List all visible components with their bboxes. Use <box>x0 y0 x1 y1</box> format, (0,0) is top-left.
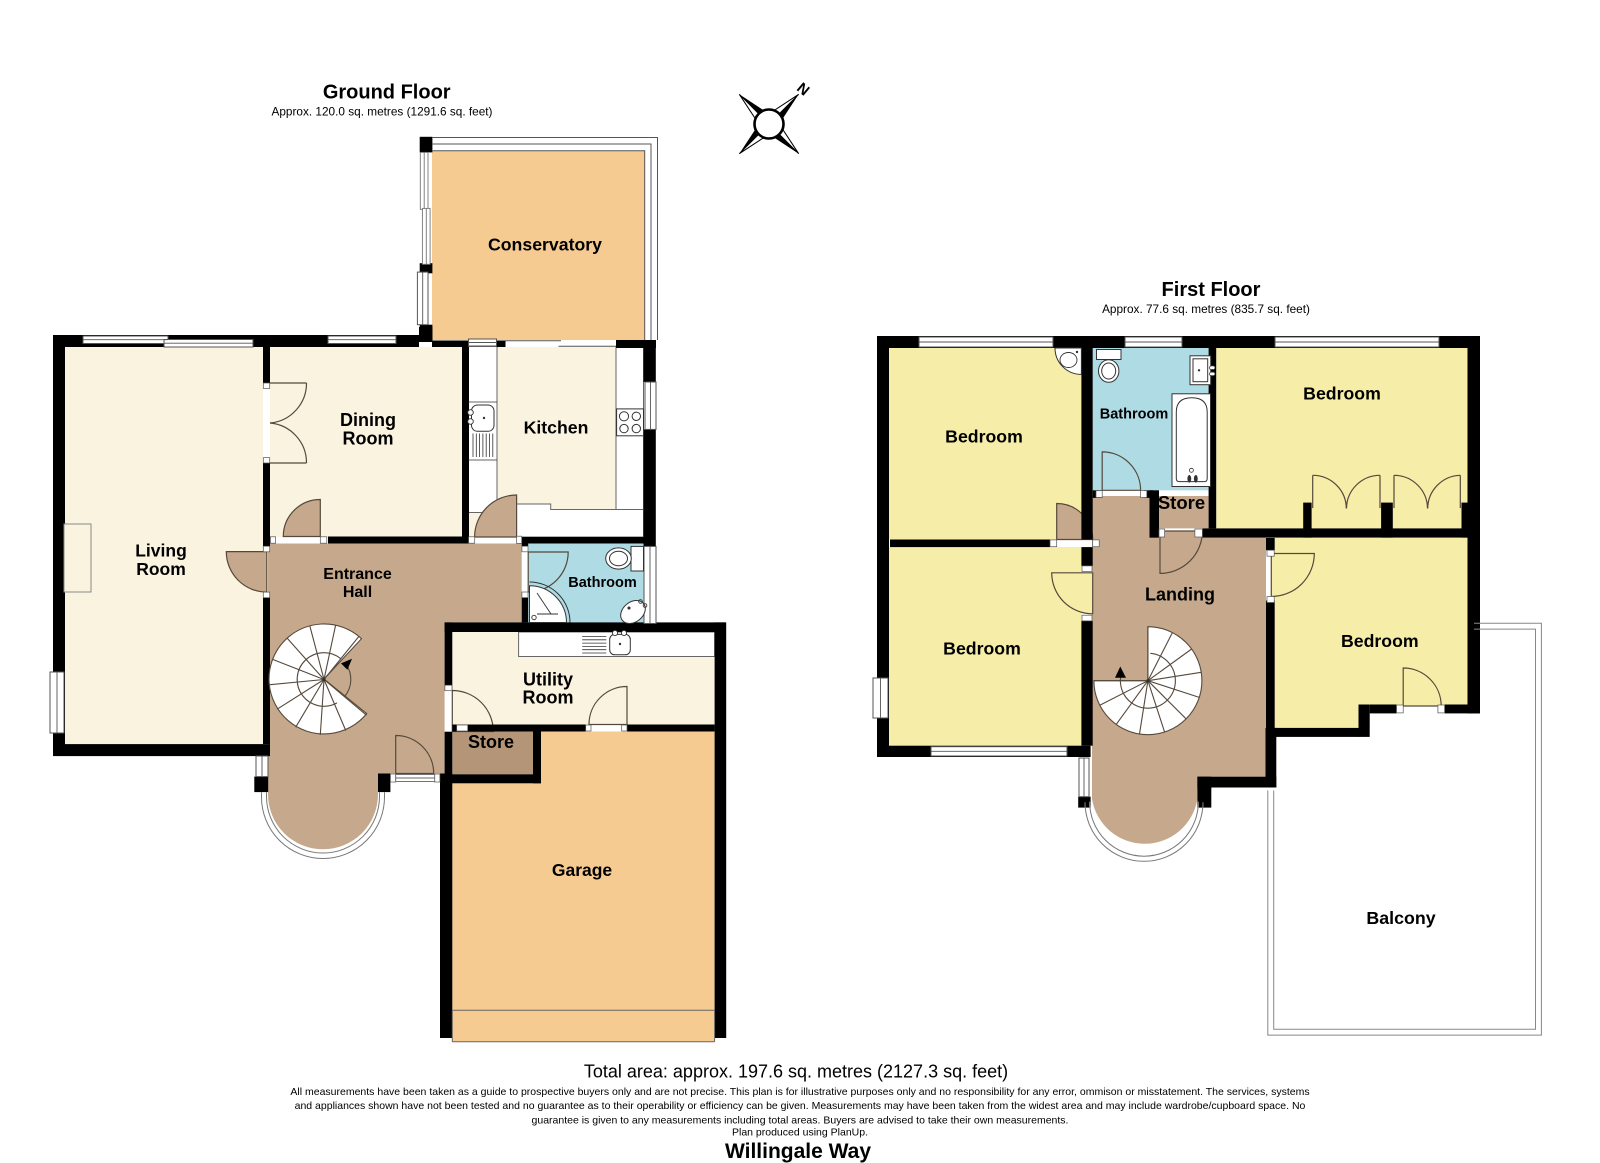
svg-text:Total area: approx. 197.6 sq.: Total area: approx. 197.6 sq. metres (21… <box>584 1062 1008 1082</box>
svg-text:Landing: Landing <box>1145 585 1215 605</box>
svg-text:Bedroom: Bedroom <box>943 638 1021 658</box>
svg-text:Ground Floor: Ground Floor <box>323 82 451 104</box>
svg-text:Approx. 120.0 sq. metres (1291: Approx. 120.0 sq. metres (1291.6 sq. fee… <box>272 105 493 119</box>
svg-text:Willingale Way: Willingale Way <box>725 1140 871 1163</box>
svg-text:Store: Store <box>1158 492 1205 513</box>
svg-text:Dining: Dining <box>340 410 396 430</box>
svg-text:Entrance: Entrance <box>323 566 392 583</box>
svg-text:Room: Room <box>343 429 394 449</box>
svg-text:Utility: Utility <box>523 670 573 690</box>
svg-text:Bedroom: Bedroom <box>945 426 1023 446</box>
svg-text:All measurements have been tak: All measurements have been taken as a gu… <box>290 1086 1309 1098</box>
svg-text:guarantee is given to any meas: guarantee is given to any measurements i… <box>532 1115 1069 1127</box>
svg-text:Hall: Hall <box>343 584 372 601</box>
svg-text:Bedroom: Bedroom <box>1341 631 1419 651</box>
svg-text:Living: Living <box>135 540 187 560</box>
svg-text:Garage: Garage <box>552 860 613 880</box>
svg-text:Conservatory: Conservatory <box>488 234 602 254</box>
svg-text:Balcony: Balcony <box>1366 908 1435 928</box>
svg-text:Bedroom: Bedroom <box>1303 383 1381 403</box>
svg-text:Store: Store <box>468 732 514 752</box>
svg-text:Room: Room <box>523 688 574 708</box>
svg-text:and appliances shown have not: and appliances shown have not been teste… <box>295 1100 1306 1112</box>
svg-text:First Floor: First Floor <box>1162 279 1261 301</box>
svg-text:Bathroom: Bathroom <box>1100 407 1168 423</box>
svg-text:Approx. 77.6 sq. metres (835.7: Approx. 77.6 sq. metres (835.7 sq. feet) <box>1102 302 1310 316</box>
svg-text:Kitchen: Kitchen <box>524 418 589 438</box>
svg-text:Bathroom: Bathroom <box>568 575 636 591</box>
svg-text:Room: Room <box>136 559 186 579</box>
svg-text:Plan produced using PlanUp.: Plan produced using PlanUp. <box>732 1127 868 1139</box>
